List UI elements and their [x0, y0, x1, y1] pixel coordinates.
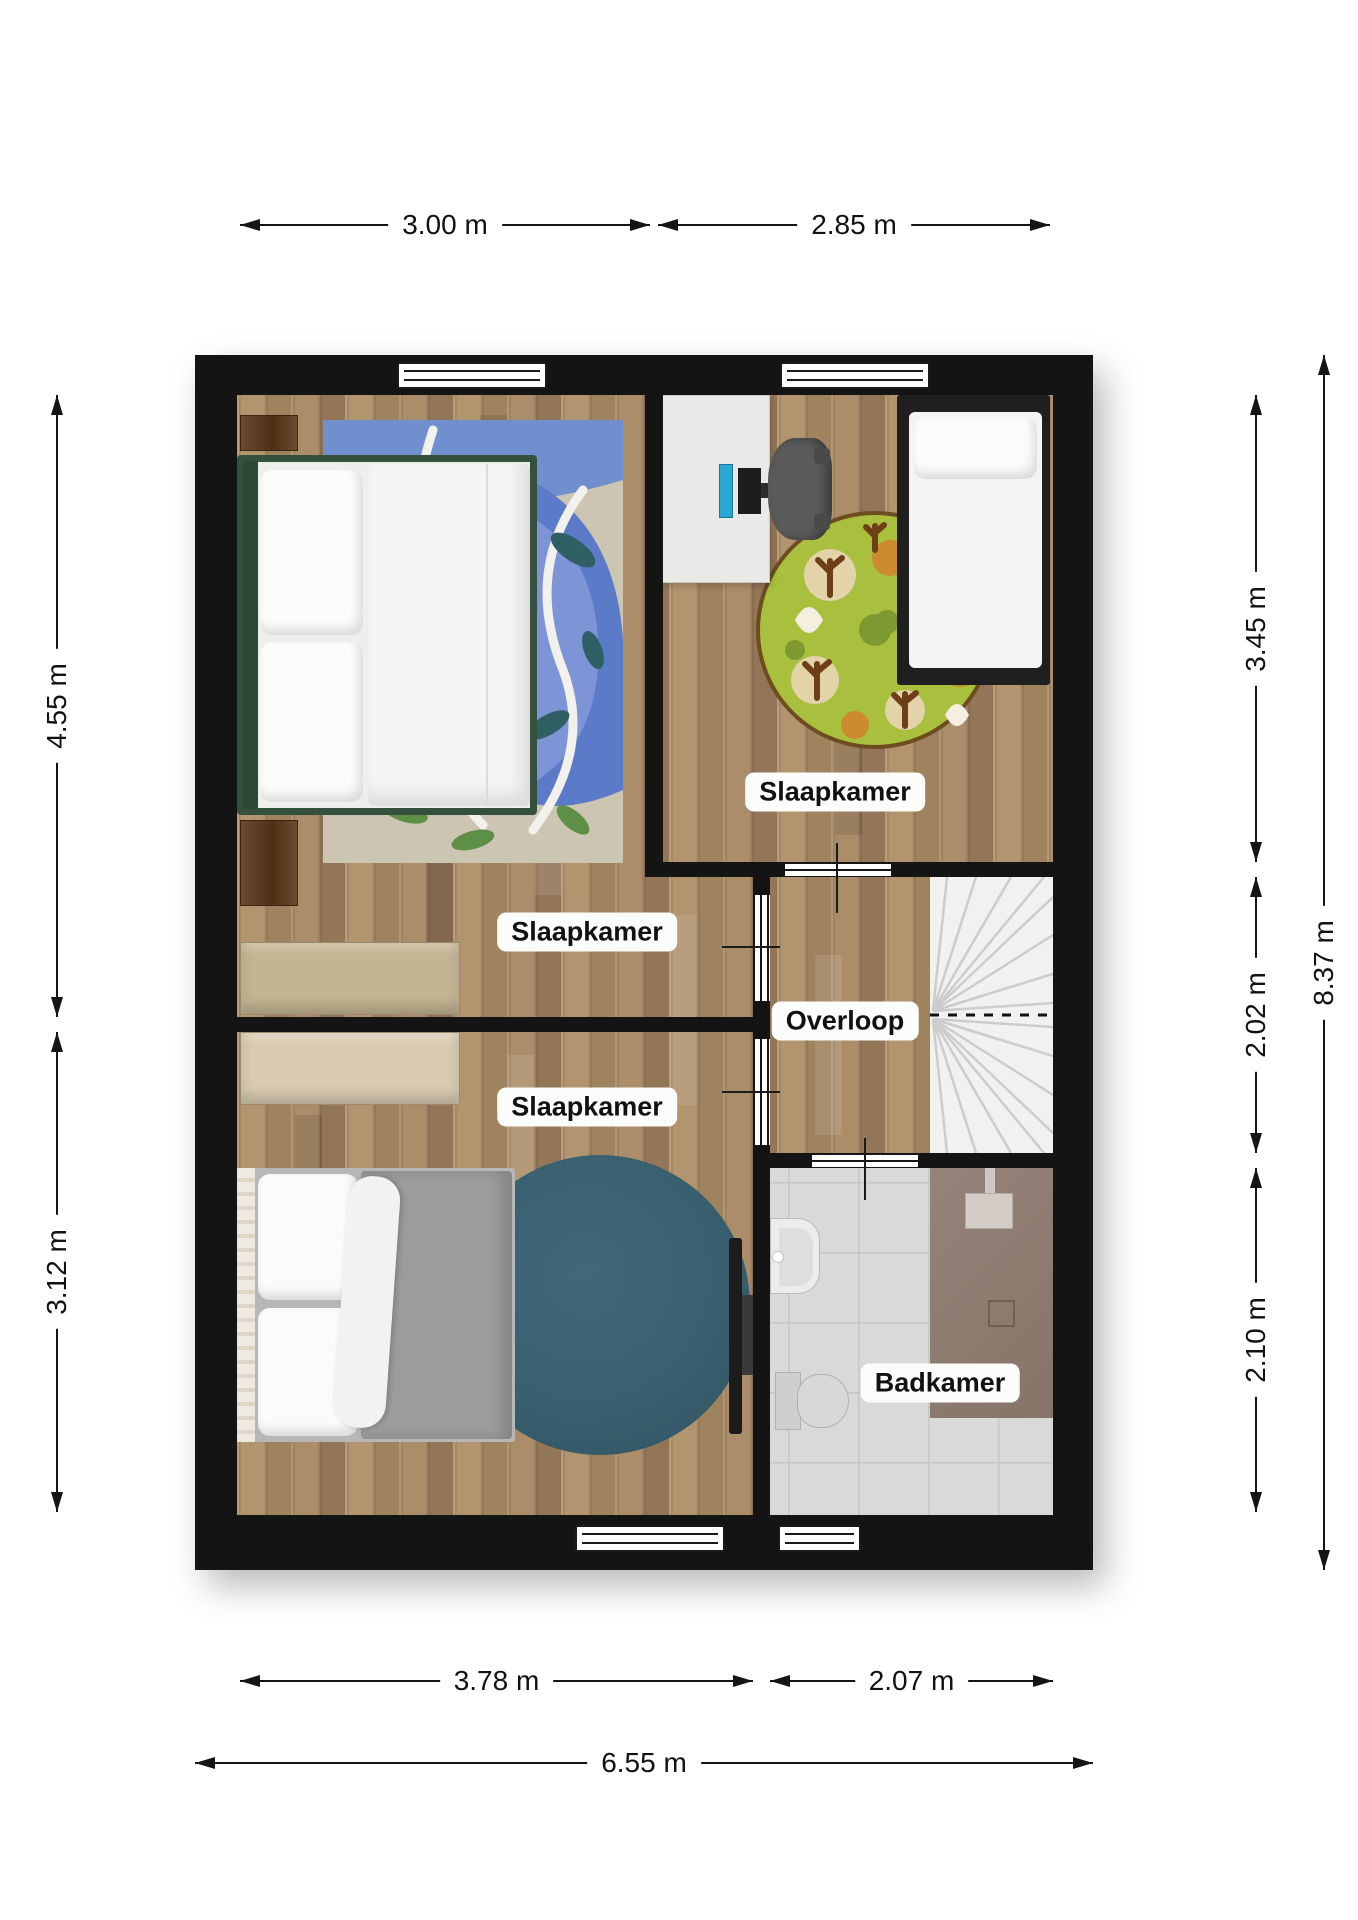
- stairs: [930, 877, 1053, 1153]
- dimension-right-middle: 2.02 m: [1255, 877, 1257, 1153]
- sink-faucet: [773, 1252, 783, 1262]
- window: [397, 362, 547, 389]
- wall: [645, 395, 663, 877]
- wall: [645, 862, 783, 877]
- bed-duvet: [368, 464, 530, 806]
- toilet-bowl: [797, 1374, 849, 1428]
- bed-headboard: [237, 1168, 255, 1442]
- wall: [753, 877, 770, 893]
- wall: [1053, 355, 1093, 1570]
- dimension-value: 3.00 m: [388, 207, 502, 243]
- dimension-right-bottom: 2.10 m: [1255, 1168, 1257, 1512]
- window: [780, 362, 930, 389]
- dresser: [240, 1032, 460, 1105]
- wall: [753, 1003, 770, 1037]
- window: [575, 1525, 725, 1552]
- nightstand: [240, 820, 298, 906]
- dimension-value: 3.78 m: [440, 1663, 554, 1699]
- room-label-slaapkamer-1: Slaapkamer: [497, 913, 677, 952]
- bed-pillow: [260, 470, 363, 635]
- floor-plan-page: Slaapkamer Slaapkamer Slaapkamer Overloo…: [0, 0, 1358, 1920]
- room-label-slaapkamer-2: Slaapkamer: [745, 773, 925, 812]
- dimension-bottom-right: 2.07 m: [770, 1680, 1053, 1682]
- room-label-slaapkamer-3: Slaapkamer: [497, 1088, 677, 1127]
- chair-armrest: [814, 448, 830, 464]
- shower-pipe: [985, 1168, 995, 1195]
- shower-head: [965, 1193, 1013, 1229]
- dresser: [240, 942, 460, 1015]
- window: [778, 1525, 861, 1552]
- wall: [753, 1147, 770, 1515]
- dimension-value: 4.55 m: [39, 649, 75, 763]
- duvet-fold: [486, 464, 488, 806]
- wall: [195, 355, 237, 1570]
- bed-double-grey: [237, 1168, 515, 1442]
- sink-basin: [779, 1228, 813, 1286]
- dimension-bottom-total: 6.55 m: [195, 1762, 1093, 1764]
- dimension-value: 2.07 m: [855, 1663, 969, 1699]
- nightstand: [240, 415, 298, 451]
- dimension-top-right: 2.85 m: [658, 224, 1050, 226]
- dimension-value: 2.10 m: [1238, 1283, 1274, 1397]
- door-swing-mark: [836, 843, 838, 913]
- wall: [195, 355, 1093, 395]
- tv: [729, 1238, 742, 1434]
- bed-headboard: [243, 461, 258, 809]
- monitor: [738, 468, 761, 514]
- door: [783, 862, 893, 877]
- dimension-value: 3.12 m: [39, 1215, 75, 1329]
- door: [753, 893, 770, 1003]
- floor-plank: [815, 955, 842, 1135]
- room-label-badkamer: Badkamer: [861, 1364, 1020, 1403]
- dimension-value: 2.02 m: [1238, 958, 1274, 1072]
- room-label-overloop: Overloop: [772, 1002, 919, 1041]
- dimension-right-total: 8.37 m: [1323, 355, 1325, 1570]
- dimension-bottom-left: 3.78 m: [240, 1680, 753, 1682]
- bed-single: [897, 395, 1050, 685]
- dimension-value: 6.55 m: [587, 1745, 701, 1781]
- dimension-value: 3.45 m: [1238, 572, 1274, 686]
- sink: [770, 1218, 820, 1294]
- door-swing-mark: [722, 1091, 780, 1093]
- bed-pillow: [914, 417, 1037, 479]
- bed-pillow: [260, 642, 363, 802]
- laptop: [719, 464, 733, 518]
- dimension-right-top: 3.45 m: [1255, 395, 1257, 862]
- bed-double: [237, 455, 537, 815]
- wall: [770, 1153, 810, 1168]
- door-swing-mark: [722, 946, 780, 948]
- dimension-value: 2.85 m: [797, 207, 911, 243]
- wall: [920, 1153, 1053, 1168]
- door-swing-mark: [864, 1138, 866, 1200]
- dimension-left-lower: 3.12 m: [56, 1032, 58, 1512]
- tv-mount: [742, 1295, 753, 1375]
- shower-drain: [988, 1300, 1015, 1327]
- dimension-value: 8.37 m: [1306, 906, 1342, 1020]
- chair-armrest: [814, 514, 830, 530]
- wall: [237, 1017, 753, 1032]
- dimension-left-upper: 4.55 m: [56, 395, 58, 1017]
- desk-chair: [768, 438, 832, 540]
- wall: [893, 862, 1053, 877]
- dimension-top-left: 3.00 m: [240, 224, 650, 226]
